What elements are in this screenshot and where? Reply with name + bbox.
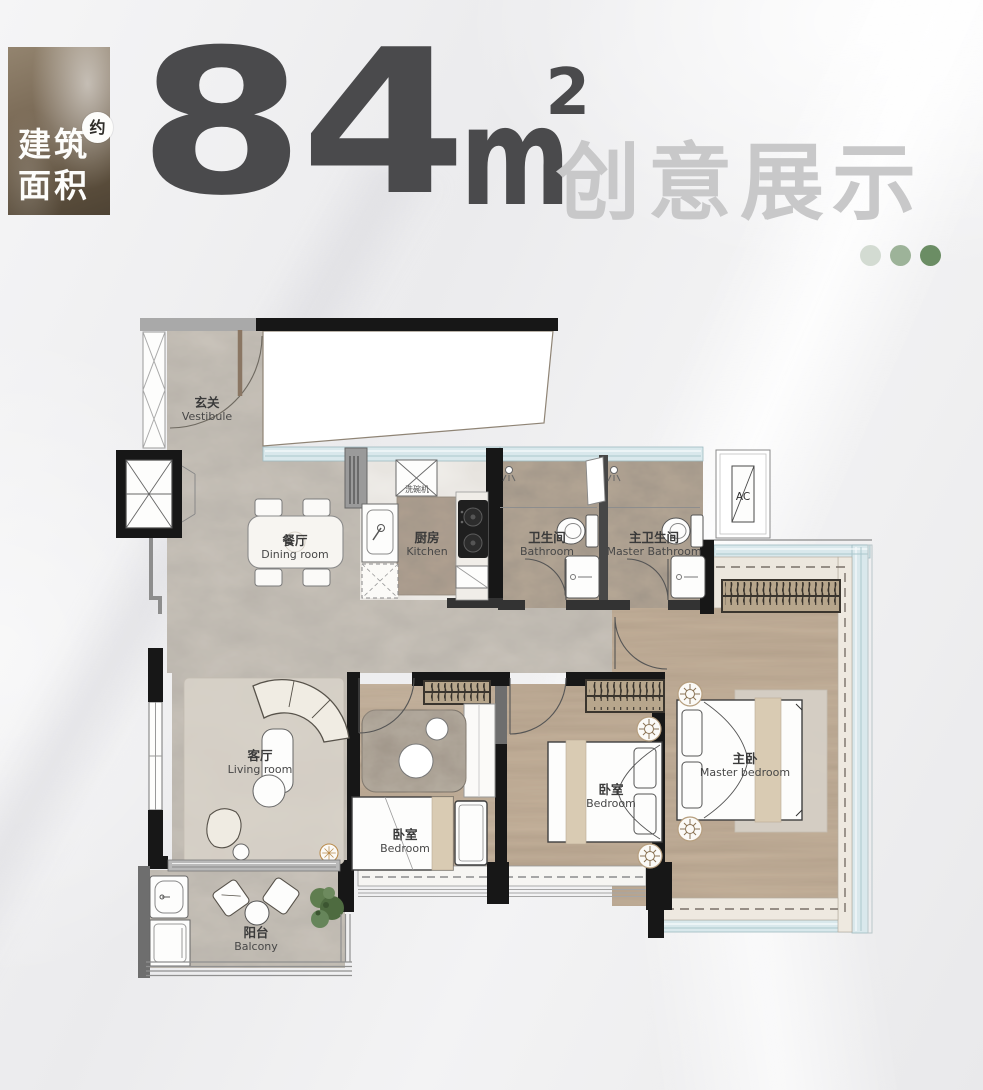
label-kitchen-en: Kitchen: [406, 545, 447, 558]
balcony-sink: [150, 876, 188, 918]
wardrobe-bedroom-a: [424, 681, 490, 704]
dishwasher-icon: [362, 564, 398, 598]
balcony-sliding-door: [168, 860, 340, 871]
label-bathroom-zh: 卫生间: [528, 530, 566, 545]
floor-ornament: [320, 844, 338, 862]
louver-window: [143, 332, 165, 448]
ac-unit: AC: [716, 450, 770, 538]
floorplan-drawing: AC: [0, 0, 983, 1090]
label-master-bedroom-zh: 主卧: [732, 751, 758, 766]
wardrobe-bedroom-b: [586, 680, 664, 712]
label-living-en: Living room: [228, 763, 293, 776]
wardrobe-master: [722, 580, 840, 612]
label-master-bedroom-en: Master bedroom: [700, 766, 790, 779]
ac-label: AC: [736, 491, 750, 503]
bed-single: [352, 797, 487, 870]
desk-table: [362, 710, 466, 792]
label-bedroom-a-en: Bedroom: [380, 842, 430, 855]
label-dining-en: Dining room: [261, 548, 328, 561]
washing-machine: [150, 920, 190, 966]
label-bathroom-en: Bathroom: [520, 545, 574, 558]
label-living-zh: 客厅: [246, 748, 273, 763]
label-kitchen-zh: 厨房: [414, 530, 439, 545]
label-master-bathroom-en: Master Bathroom: [606, 545, 701, 558]
kitchen-sliding-door: [345, 448, 367, 508]
living-window: [149, 702, 162, 810]
label-bedroom-b-zh: 卧室: [598, 782, 624, 797]
label-master-bathroom-zh: 主卫生间: [629, 530, 679, 545]
label-vestibule-en: Vestibule: [182, 410, 233, 423]
label-dishwasher: 洗碗机: [405, 484, 429, 494]
label-balcony-zh: 阳台: [243, 925, 268, 940]
label-bedroom-a-zh: 卧室: [392, 827, 418, 842]
floorplan-poster: 建筑 面积 约 84m2 创意展示: [0, 0, 983, 1090]
kitchen-sink: [362, 504, 398, 562]
kitchen-cabinet: [456, 566, 488, 588]
label-balcony-en: Balcony: [234, 940, 278, 953]
bay-area: [263, 331, 553, 446]
label-vestibule-zh: 玄关: [194, 395, 220, 410]
label-dining-zh: 餐厅: [281, 533, 308, 548]
balcony-table: [245, 901, 269, 925]
label-bedroom-b-en: Bedroom: [586, 797, 636, 810]
glass-partition: [586, 457, 605, 505]
